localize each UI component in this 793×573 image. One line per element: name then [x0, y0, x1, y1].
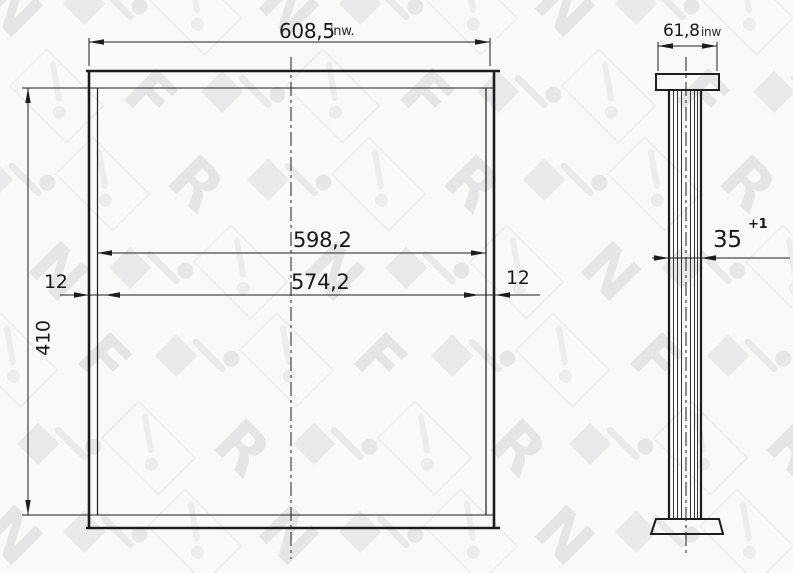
- label-offset-left: 12: [44, 271, 68, 293]
- label-core-thickness-tolerance: +1: [748, 217, 767, 232]
- label-total-depth-unit: inw: [701, 25, 721, 39]
- dimension-total-depth: [658, 42, 717, 71]
- radiator-core-drawing: [0, 0, 793, 573]
- label-total-width-unit: inw.: [330, 24, 354, 39]
- label-core-height: 410: [33, 320, 55, 355]
- technical-drawing-page: NNNFFFRRRNNNFFFRRRNNN: [0, 0, 793, 573]
- label-tube-width: 574,2: [291, 270, 350, 294]
- side-view-outline: [651, 74, 723, 534]
- dimension-core-thickness: [652, 255, 790, 260]
- label-total-depth: 61,8: [663, 21, 700, 41]
- label-inner-width: 598,2: [293, 228, 352, 252]
- label-offset-right: 12: [506, 267, 530, 289]
- label-core-thickness: 35: [713, 227, 742, 253]
- front-view-outline: [86, 70, 500, 529]
- label-total-width: 608,5: [279, 19, 335, 43]
- side-view-fins: [674, 90, 698, 519]
- dimension-core-height: [22, 88, 89, 515]
